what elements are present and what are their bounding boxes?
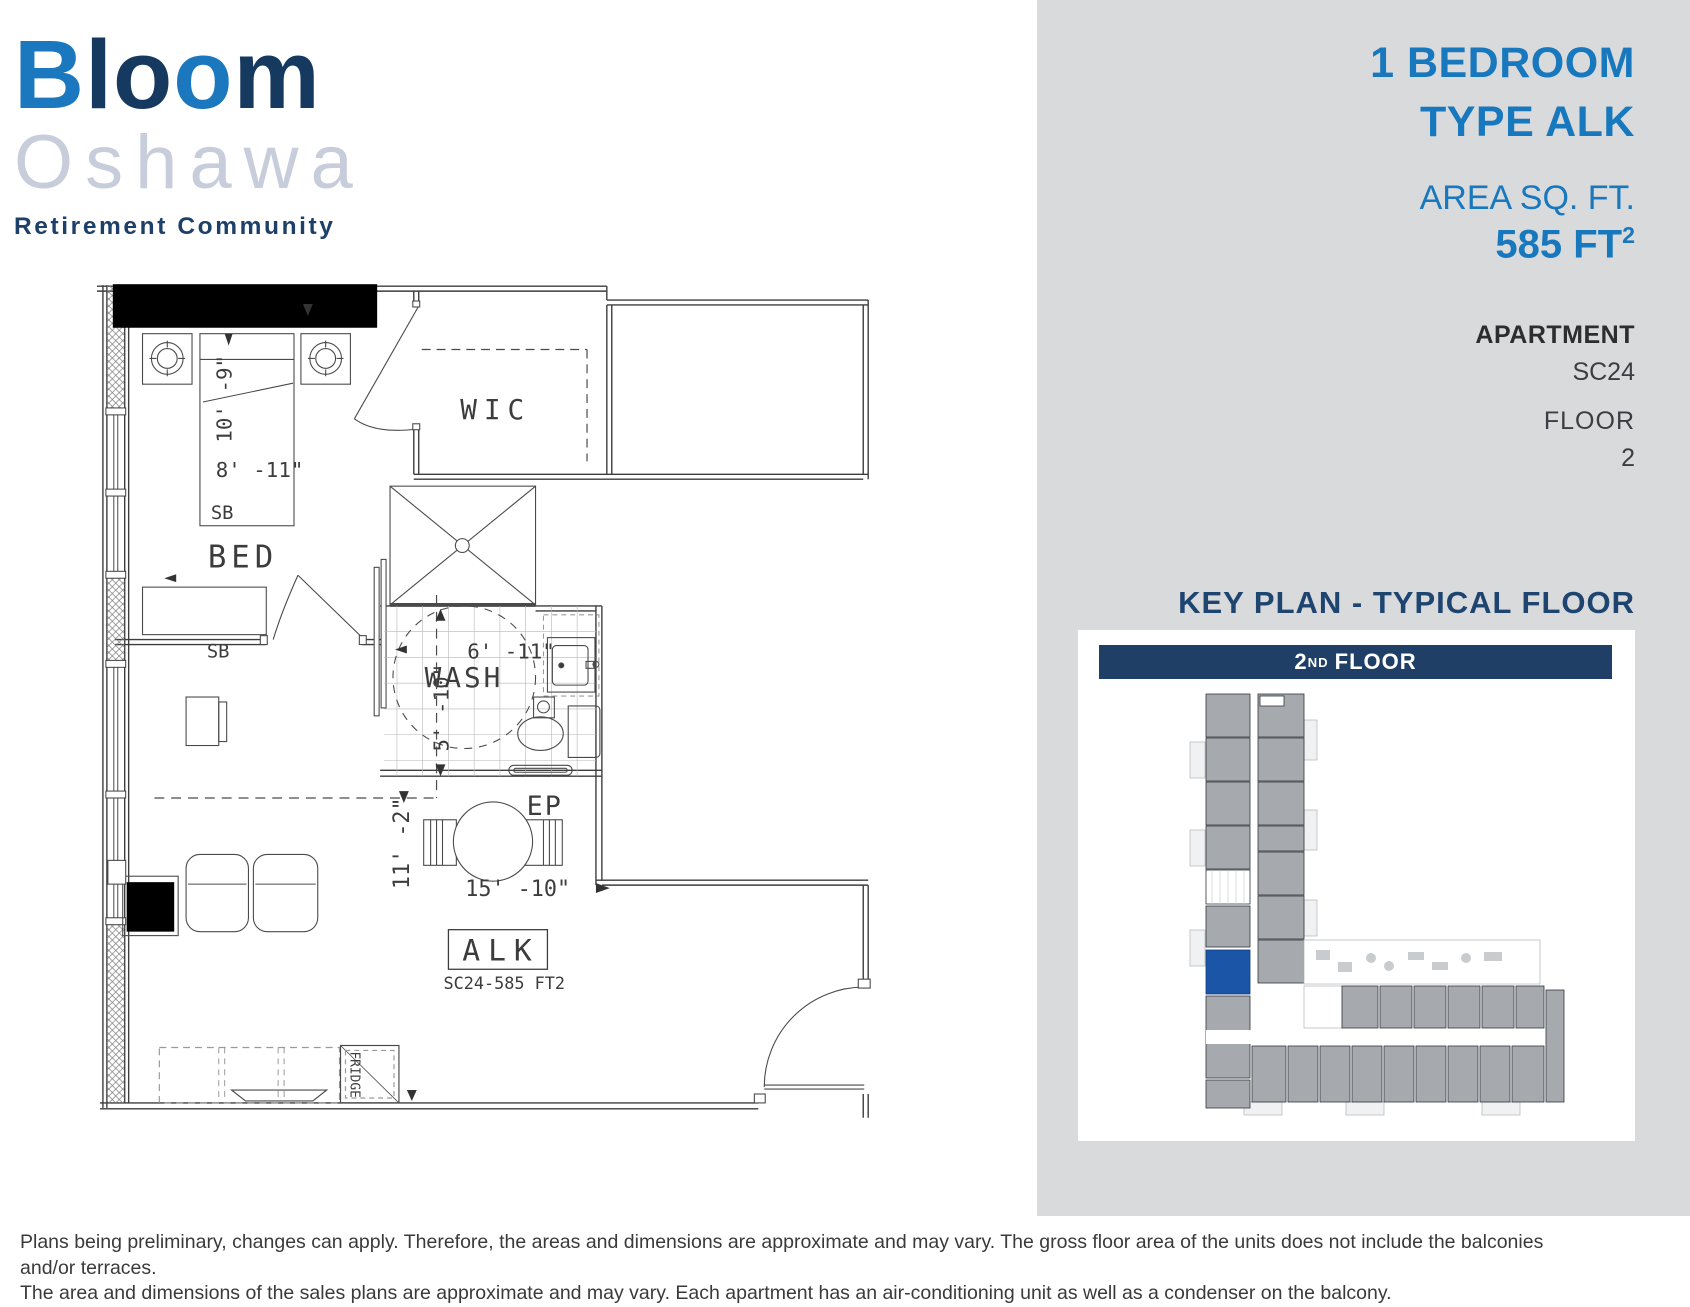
dim-bed-width: 10' -9" (213, 355, 237, 443)
unit-tag: ALK SC24-585 FT2 (443, 930, 565, 993)
unit-code: SC24-585 FT2 (443, 973, 565, 993)
dim-living-length: 15' -10" (465, 877, 570, 902)
key-plan-heading: KEY PLAN - TYPICAL FLOOR (1178, 585, 1635, 621)
bedroom (143, 334, 351, 635)
key-plan-units-upper-row (1342, 986, 1544, 1028)
area-value-number: 585 FT (1495, 222, 1622, 266)
label-sb-living: SB (207, 641, 230, 662)
logo-letter: B (14, 20, 85, 129)
wall-header-solid (113, 284, 377, 328)
logo-letter: o (173, 20, 233, 129)
exterior-wall-windows (106, 285, 126, 1103)
label-sb-bed: SB (211, 503, 234, 524)
floor-bar-ordinal: ND (1308, 655, 1329, 670)
dining-area: EP 15' -10" 11' -2" (390, 791, 570, 902)
unit-title: 1 BEDROOM TYPE ALK (1370, 34, 1635, 153)
logo-letter: m (234, 20, 321, 129)
logo-tagline: Retirement Community (14, 213, 365, 241)
floor-label: FLOOR (1370, 407, 1635, 436)
key-plan-highlighted-unit (1206, 950, 1250, 994)
area-label: AREA SQ. FT. (1370, 179, 1635, 218)
bathroom: 6' -11" WASH 5' -10" (384, 486, 600, 776)
room-label-alk: ALK (462, 933, 539, 968)
room-label-wic: WIC (460, 393, 531, 426)
logo-city: Oshawa (14, 125, 365, 201)
dim-bed-length: 8' -11" (216, 458, 304, 482)
floor-bar-number: 2 (1294, 649, 1307, 675)
wic-closet: WIC (422, 350, 587, 462)
unit-info-panel: 1 BEDROOM TYPE ALK AREA SQ. FT. 585 FT2 … (1037, 0, 1690, 1216)
floor-bar-text: FLOOR (1335, 649, 1417, 675)
bedroom-text: 10' -9" 8' -11" SB BED (208, 355, 304, 575)
tv-unit (127, 882, 175, 932)
doors (260, 301, 870, 1103)
disclaimer-line1: Plans being preliminary, changes can app… (20, 1230, 1565, 1281)
unit-title-line1: 1 BEDROOM (1370, 34, 1635, 93)
dim-wash-depth: 5' -10" (429, 664, 453, 752)
key-plan-drawing (1146, 690, 1566, 1120)
floor-number: 2 (1370, 444, 1635, 473)
key-plan-floor-bar: 2NDFLOOR (1099, 645, 1612, 679)
disclaimer: Plans being preliminary, changes can app… (20, 1230, 1565, 1307)
kitchen: FRIDGE (159, 1046, 399, 1103)
logo-letter: o (113, 20, 173, 129)
area-value: 585 FT2 (1370, 222, 1635, 267)
apartment-number: SC24 (1370, 358, 1635, 387)
key-plan-card: 2NDFLOOR (1078, 630, 1635, 1141)
logo-letter: l (85, 20, 113, 129)
area-value-sup: 2 (1622, 222, 1635, 248)
brand-logo: Bloom Oshawa Retirement Community (14, 26, 365, 241)
key-plan-units-right-column (1258, 694, 1304, 983)
unit-floor-plan-drawing: WIC 10' -9" 8' -11" SB BED (95, 278, 887, 1120)
living-area: SB (108, 595, 437, 936)
apartment-label: APARTMENT (1370, 321, 1635, 350)
logo-wordmark: Bloom (14, 26, 365, 123)
label-ep: EP (527, 791, 563, 822)
floorplan-brochure-page: { "logo": { "b": "B", "l": "l", "o1": "o… (0, 0, 1690, 1306)
dim-living-width: 11' -2" (390, 797, 415, 889)
unit-summary: 1 BEDROOM TYPE ALK AREA SQ. FT. 585 FT2 … (1370, 34, 1635, 473)
dim-wash-width: 6' -11" (467, 639, 555, 663)
unit-title-line2: TYPE ALK (1370, 93, 1635, 152)
room-label-bed: BED (208, 540, 278, 575)
disclaimer-line2: The area and dimensions of the sales pla… (20, 1281, 1565, 1307)
label-fridge: FRIDGE (346, 1051, 361, 1097)
